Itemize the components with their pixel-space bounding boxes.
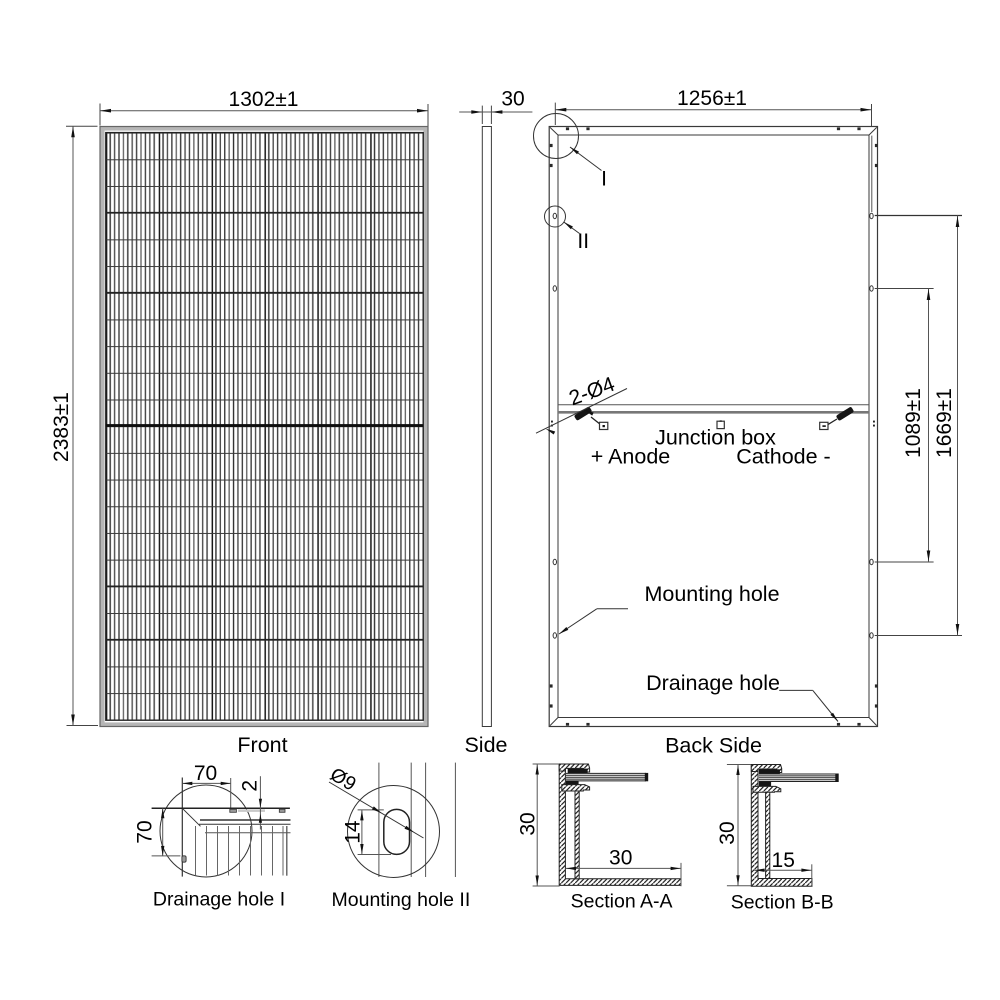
svg-text:Drainage hole: Drainage hole: [646, 671, 780, 695]
svg-text:14: 14: [342, 820, 365, 844]
svg-text:Mounting hole II: Mounting hole II: [332, 889, 471, 911]
svg-text:2383±1: 2383±1: [50, 392, 73, 462]
svg-text:70: 70: [194, 762, 217, 785]
svg-text:Side: Side: [464, 733, 507, 757]
svg-text:Front: Front: [237, 733, 287, 757]
svg-text:1302±1: 1302±1: [229, 88, 299, 111]
svg-text:70: 70: [134, 820, 157, 843]
svg-text:Mounting hole: Mounting hole: [644, 582, 779, 606]
svg-text:2: 2: [238, 780, 261, 792]
svg-text:1669±1: 1669±1: [933, 388, 956, 458]
svg-text:30: 30: [516, 812, 539, 835]
svg-text:+ Anode: + Anode: [591, 445, 671, 469]
svg-text:Cathode -: Cathode -: [736, 445, 830, 469]
svg-text:Section B-B: Section B-B: [731, 892, 834, 914]
svg-text:30: 30: [609, 847, 632, 870]
svg-text:II: II: [577, 230, 589, 253]
svg-text:30: 30: [716, 821, 739, 844]
svg-text:Section A-A: Section A-A: [571, 891, 673, 913]
svg-text:1089±1: 1089±1: [902, 388, 925, 458]
svg-text:15: 15: [772, 849, 795, 872]
svg-text:I: I: [601, 167, 607, 190]
svg-text:Drainage hole I: Drainage hole I: [153, 889, 285, 911]
svg-text:1256±1: 1256±1: [677, 87, 747, 110]
svg-text:Back Side: Back Side: [665, 734, 762, 758]
svg-text:30: 30: [501, 87, 524, 110]
